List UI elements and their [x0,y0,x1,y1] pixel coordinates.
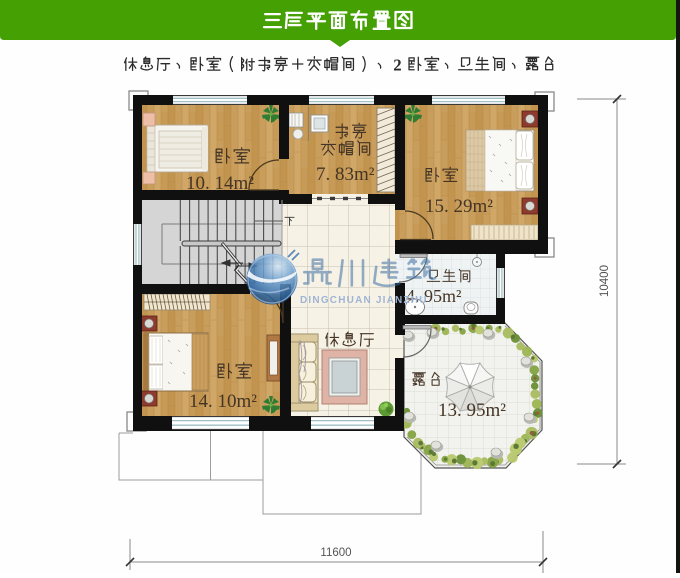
svg-text:15. 29m²: 15. 29m² [425,196,493,217]
svg-text:DINGCHUAN JIANZHU: DINGCHUAN JIANZHU [300,295,428,306]
svg-text:14. 10m²: 14. 10m² [189,391,257,412]
svg-text:7. 83m²: 7. 83m² [316,164,375,185]
svg-text:2: 2 [393,56,401,75]
svg-text:11600: 11600 [320,547,351,559]
svg-text:10400: 10400 [599,265,611,297]
svg-text:10. 14m²: 10. 14m² [186,173,254,194]
svg-text:13. 95m²: 13. 95m² [438,400,506,421]
